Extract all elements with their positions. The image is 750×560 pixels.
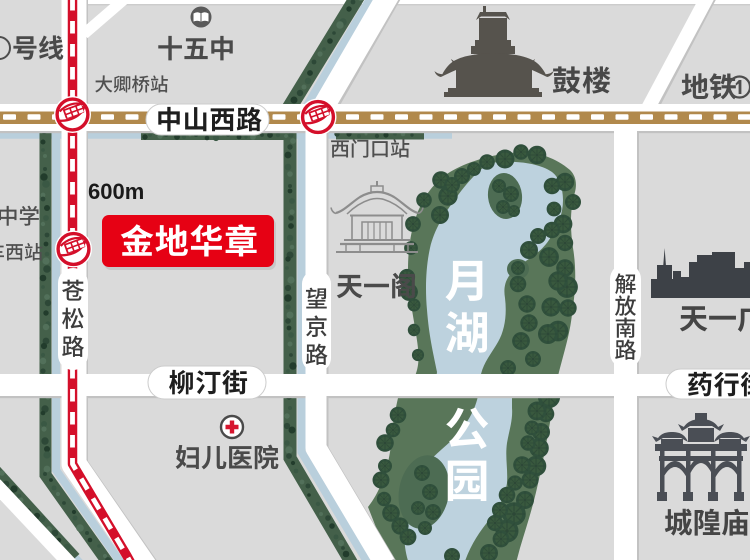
svg-text:600m: 600m — [88, 179, 144, 204]
